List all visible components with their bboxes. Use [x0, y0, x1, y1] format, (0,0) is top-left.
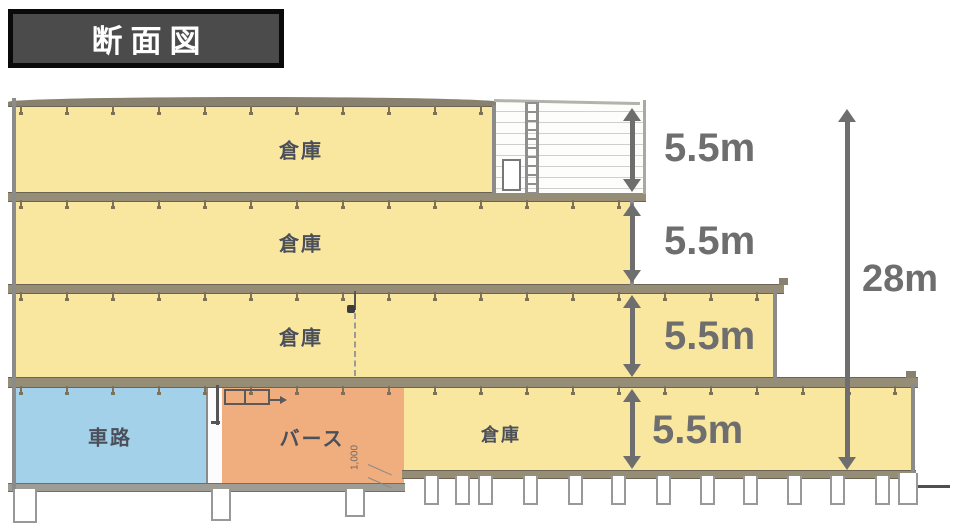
dimension-arrow-level3: [630, 215, 635, 271]
level2-warehouse-room: [15, 290, 775, 378]
height-label-level1: 5.5m: [652, 410, 743, 450]
dock-shutter-rail: [216, 385, 219, 425]
foundation-pier: [700, 476, 715, 505]
dock-leveler-arm: [268, 399, 280, 401]
rooftop-screen-post: [643, 100, 646, 194]
foundation-pier: [830, 476, 845, 505]
foundation-pier: [611, 476, 626, 505]
dimension-arrow-level1: [630, 401, 635, 457]
dock-shutter-foot: [211, 421, 220, 424]
sprinkler-ticks-level1: [20, 386, 906, 395]
total-height-label: 28m: [862, 260, 938, 298]
foundation-pier: [424, 476, 439, 505]
west-wall: [12, 98, 16, 490]
sprinkler-ticks-level3: [20, 200, 625, 209]
foundation-pier: [345, 489, 365, 517]
dimension-arrow-level2: [630, 307, 635, 365]
berth-label: バース: [280, 423, 345, 452]
level3-label: 倉庫: [279, 228, 323, 257]
foundation-pier: [211, 489, 231, 521]
rooftop-door: [502, 159, 521, 191]
level4-warehouse-room: [15, 105, 494, 193]
sprinkler-ticks-level2: [20, 292, 768, 301]
level2-east-wall: [773, 290, 777, 379]
foundation-pier: [875, 476, 890, 505]
section-diagram: 断面図 1,000: [0, 0, 956, 529]
rooftop-ladder: [525, 102, 539, 193]
dimension-arrow-level4: [630, 120, 635, 180]
height-label-level2: 5.5m: [664, 316, 755, 356]
level3-warehouse-room: [15, 198, 632, 285]
dock-leveler-arrow-icon: [280, 396, 287, 404]
height-label-level4: 5.5m: [664, 128, 755, 168]
foundation-pier: [656, 476, 671, 505]
foundation-pier: [898, 473, 918, 505]
foundation-pier: [523, 476, 538, 505]
foundation-pier: [743, 476, 758, 505]
road-label: 車路: [88, 422, 132, 451]
level2-label: 倉庫: [279, 322, 323, 351]
dimension-arrow-total: [845, 121, 850, 458]
sprinkler-ticks-level4: [20, 106, 488, 115]
foundation-pier: [568, 476, 583, 505]
foundation-pier: [13, 489, 37, 523]
foundation-pier: [455, 476, 470, 505]
parapet-level3: [779, 278, 788, 285]
diagram-title-box: 断面図: [8, 9, 284, 68]
diagram-title: 断面図: [84, 16, 209, 61]
ground-line: [916, 485, 950, 488]
riser-dashed-drop: [354, 313, 356, 376]
riser-valve: [347, 305, 355, 313]
parapet-level2: [906, 371, 916, 378]
level4-label: 倉庫: [279, 135, 323, 164]
level1-east-wall: [911, 384, 915, 473]
dock-leveler: [224, 389, 270, 405]
dock-step-dimension: 1,000: [350, 443, 361, 473]
foundation-pier: [478, 476, 493, 505]
height-label-level3: 5.5m: [664, 221, 755, 261]
foundation-pier: [787, 476, 802, 505]
level1-warehouse-label: 倉庫: [481, 421, 521, 447]
